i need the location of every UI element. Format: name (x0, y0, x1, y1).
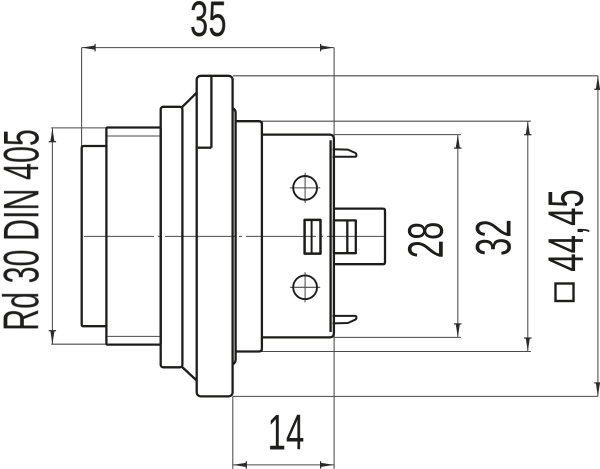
svg-text:35: 35 (190, 0, 227, 47)
svg-text:28: 28 (398, 222, 454, 259)
svg-text:Rd 30 DIN 405: Rd 30 DIN 405 (0, 129, 49, 331)
svg-text:44,45: 44,45 (538, 189, 594, 272)
svg-text:32: 32 (466, 219, 522, 256)
svg-text:14: 14 (268, 405, 305, 461)
